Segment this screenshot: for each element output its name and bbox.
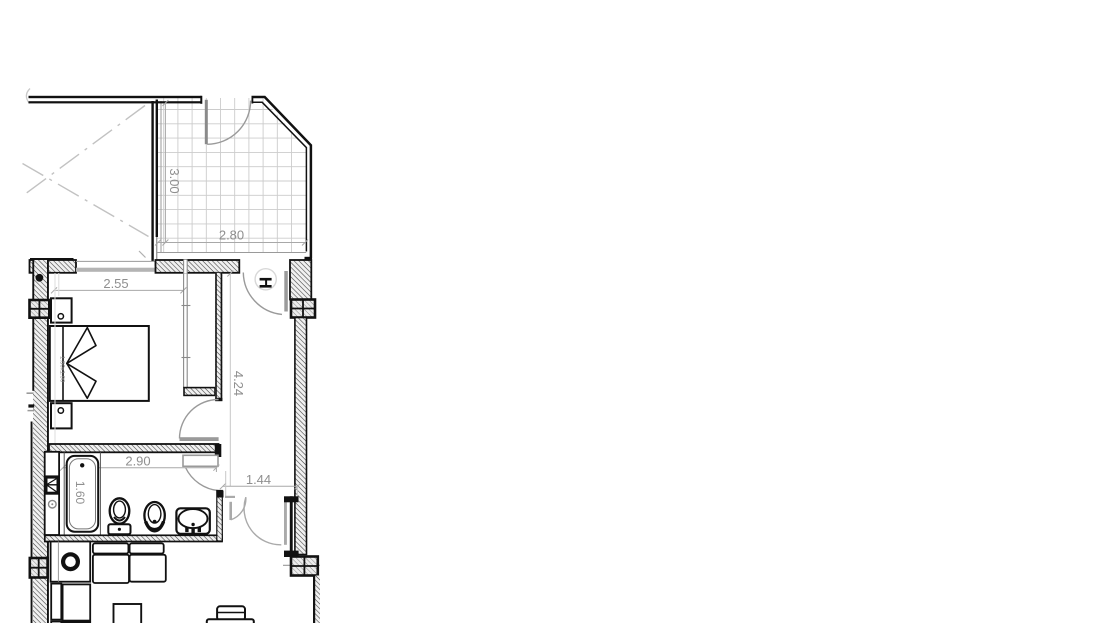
svg-text:1.50x1.90: 1.50x1.90 bbox=[59, 356, 65, 383]
svg-text:2.80: 2.80 bbox=[219, 227, 244, 242]
svg-text:1.60: 1.60 bbox=[73, 481, 87, 505]
svg-text:3.00: 3.00 bbox=[167, 168, 182, 193]
svg-text:4.24: 4.24 bbox=[231, 371, 246, 396]
svg-text:2.90: 2.90 bbox=[125, 454, 150, 469]
svg-text:1.44: 1.44 bbox=[246, 472, 271, 487]
svg-text:2.55: 2.55 bbox=[103, 276, 128, 291]
